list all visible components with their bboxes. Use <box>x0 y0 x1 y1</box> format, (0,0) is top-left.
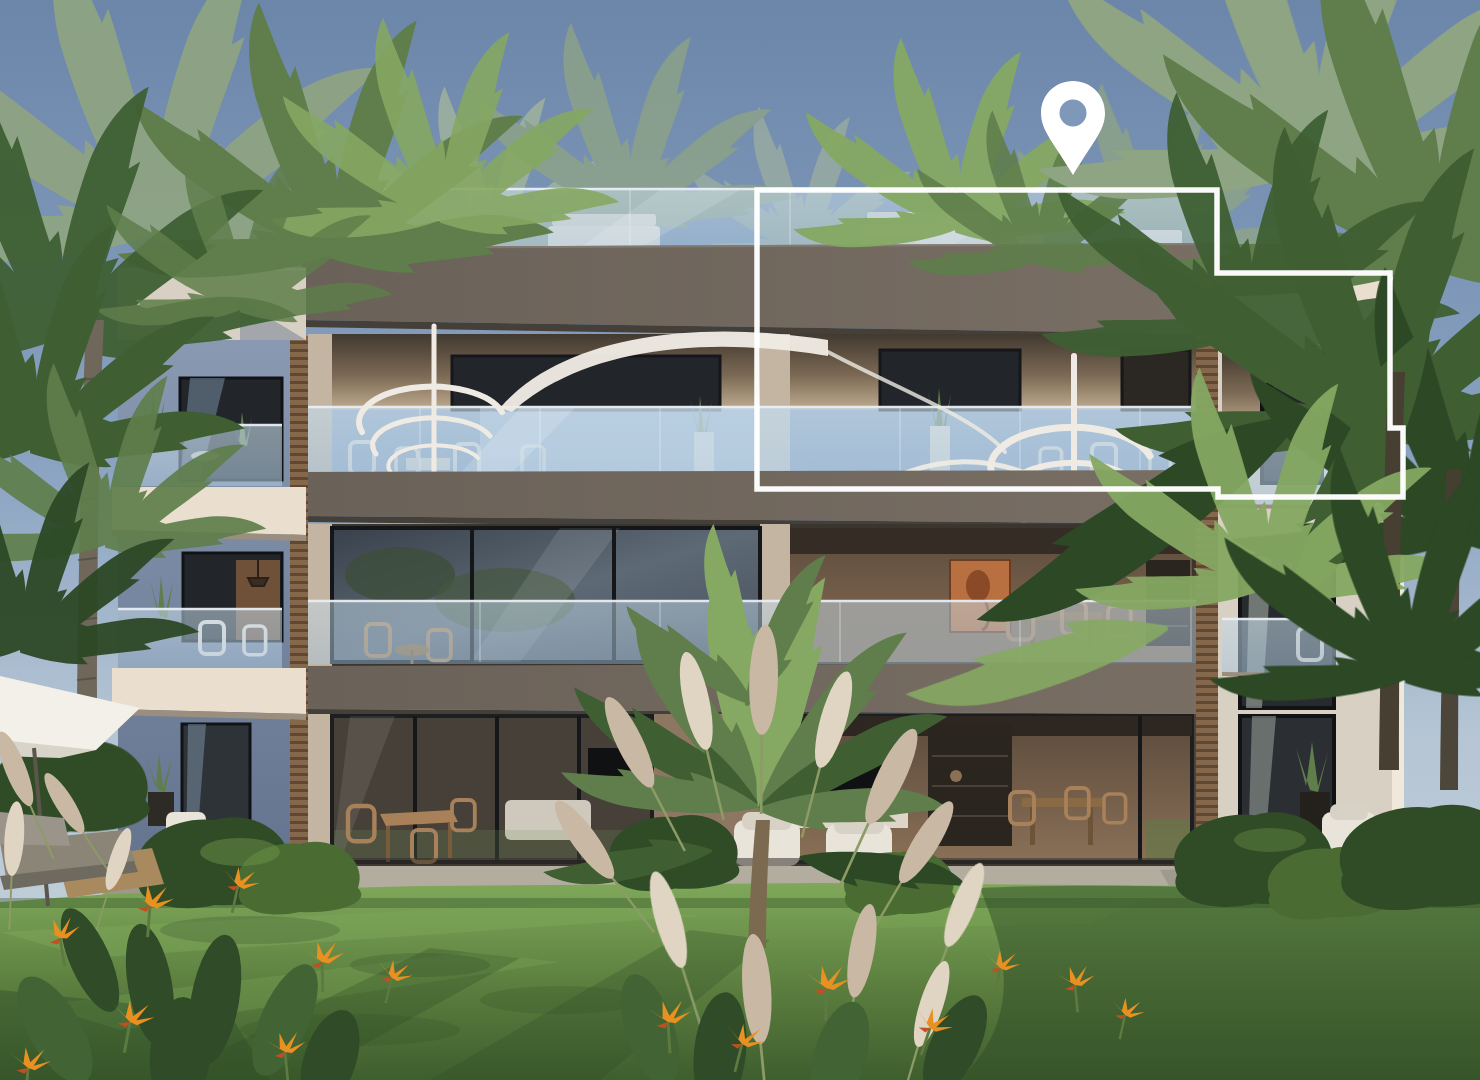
penthouse-window <box>880 350 1020 410</box>
wood-slat-pier <box>288 336 308 866</box>
render-canvas <box>0 0 1480 1080</box>
property-render <box>0 0 1480 1080</box>
